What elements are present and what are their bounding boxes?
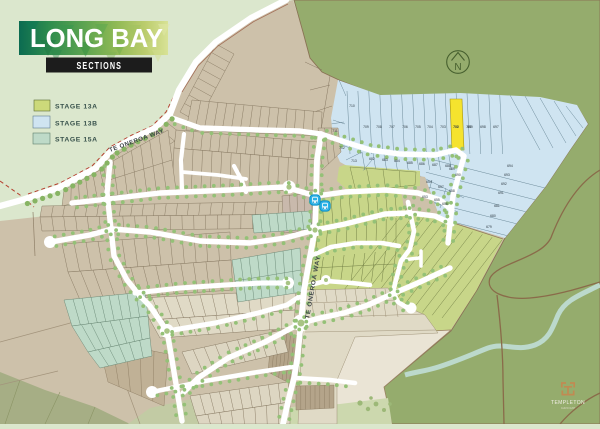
svg-text:692: 692 bbox=[501, 182, 507, 186]
svg-text:655: 655 bbox=[434, 198, 440, 202]
svg-text:697: 697 bbox=[493, 125, 499, 129]
svg-text:679: 679 bbox=[486, 225, 492, 229]
svg-text:690: 690 bbox=[455, 173, 461, 177]
svg-text:N: N bbox=[454, 62, 461, 73]
svg-text:684: 684 bbox=[394, 159, 400, 163]
svg-text:SECTIONS: SECTIONS bbox=[77, 61, 123, 72]
svg-text:657: 657 bbox=[438, 185, 444, 189]
svg-text:712: 712 bbox=[339, 146, 345, 150]
svg-text:685: 685 bbox=[407, 161, 413, 165]
svg-text:705: 705 bbox=[415, 125, 421, 129]
svg-text:STAGE 13A: STAGE 13A bbox=[55, 104, 98, 111]
svg-text:710: 710 bbox=[349, 104, 355, 108]
svg-text:699: 699 bbox=[467, 125, 473, 129]
svg-text:698: 698 bbox=[480, 125, 486, 129]
svg-text:681: 681 bbox=[494, 204, 500, 208]
svg-text:GROUP: GROUP bbox=[561, 406, 575, 410]
svg-text:707: 707 bbox=[389, 125, 395, 129]
svg-text:709: 709 bbox=[363, 125, 369, 129]
svg-text:LONG BAY: LONG BAY bbox=[30, 25, 163, 53]
svg-text:691: 691 bbox=[498, 191, 504, 195]
svg-text:683: 683 bbox=[382, 158, 388, 162]
svg-text:686: 686 bbox=[419, 162, 425, 166]
svg-text:654: 654 bbox=[426, 180, 432, 184]
svg-text:700: 700 bbox=[453, 125, 459, 129]
svg-text:TEMPLETON: TEMPLETON bbox=[551, 400, 585, 406]
svg-text:687: 687 bbox=[432, 163, 438, 167]
svg-text:682: 682 bbox=[369, 157, 375, 161]
svg-text:706: 706 bbox=[402, 125, 408, 129]
svg-text:693: 693 bbox=[504, 173, 510, 177]
svg-text:713: 713 bbox=[351, 159, 357, 163]
svg-text:703: 703 bbox=[440, 125, 446, 129]
svg-text:653: 653 bbox=[422, 195, 428, 199]
svg-text:STAGE 13B: STAGE 13B bbox=[55, 121, 98, 128]
svg-text:689: 689 bbox=[449, 167, 455, 171]
svg-text:656: 656 bbox=[442, 202, 448, 206]
svg-text:704: 704 bbox=[427, 125, 433, 129]
svg-text:694: 694 bbox=[507, 164, 513, 168]
svg-text:708: 708 bbox=[376, 125, 382, 129]
svg-text:680: 680 bbox=[490, 214, 496, 218]
svg-text:STAGE 15A: STAGE 15A bbox=[55, 137, 98, 144]
svg-text:711: 711 bbox=[332, 129, 338, 133]
svg-text:658: 658 bbox=[449, 189, 455, 193]
